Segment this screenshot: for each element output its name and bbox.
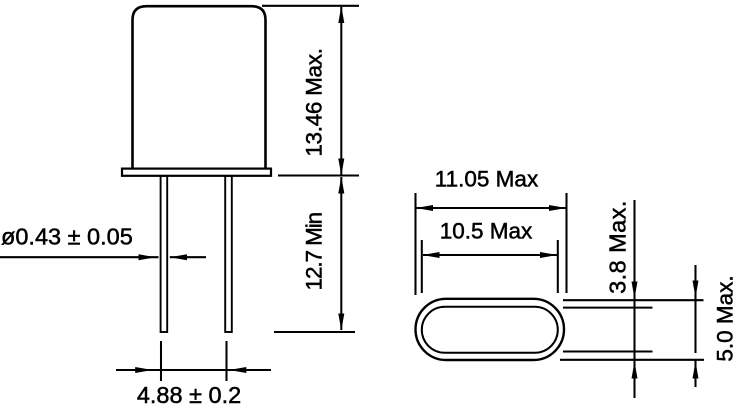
svg-text:4.88 ± 0.2: 4.88 ± 0.2 — [137, 382, 241, 408]
svg-text:13.46 Max.: 13.46 Max. — [302, 48, 327, 156]
svg-text:3.8 Max.: 3.8 Max. — [605, 200, 631, 294]
svg-text:11.05 Max: 11.05 Max — [435, 167, 539, 192]
svg-text:ø0.43 ± 0.05: ø0.43 ± 0.05 — [1, 224, 133, 250]
svg-text:10.5 Max: 10.5 Max — [440, 219, 533, 244]
svg-text:12.7 Min: 12.7 Min — [302, 212, 327, 290]
svg-text:5.0 Max.: 5.0 Max. — [713, 275, 736, 361]
